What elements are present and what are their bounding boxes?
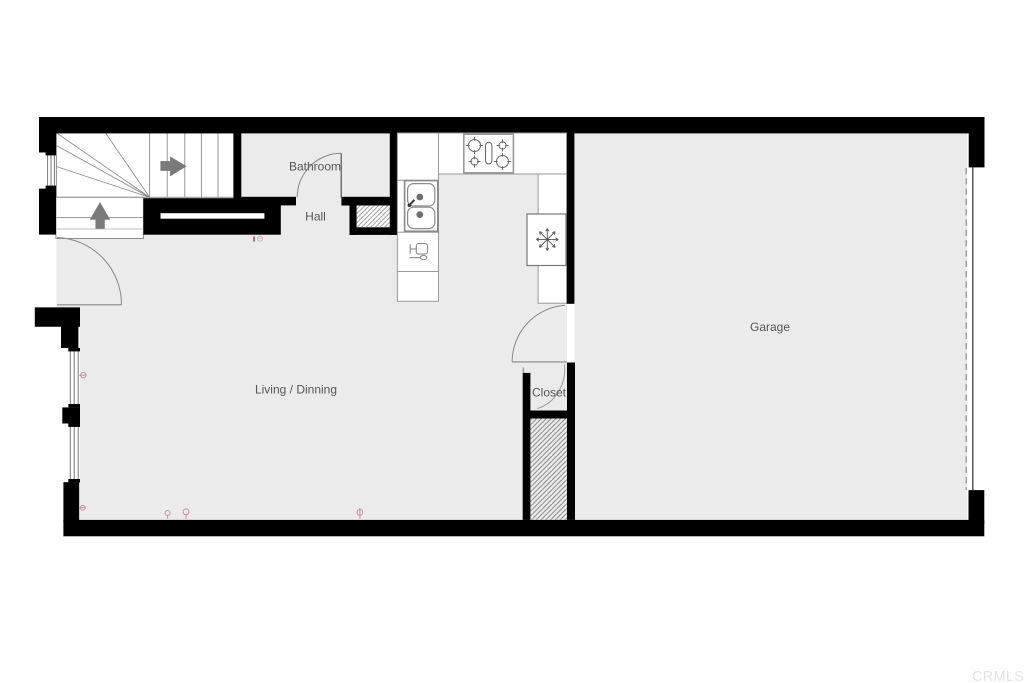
svg-text:CRMLS: CRMLS (972, 669, 1024, 683)
svg-text:Garage: Garage (750, 320, 790, 334)
svg-text:Living / Dinning: Living / Dinning (255, 383, 337, 397)
svg-text:Closet: Closet (532, 385, 567, 399)
svg-text:Bathroom: Bathroom (289, 160, 341, 174)
svg-text:Hall: Hall (305, 210, 326, 224)
